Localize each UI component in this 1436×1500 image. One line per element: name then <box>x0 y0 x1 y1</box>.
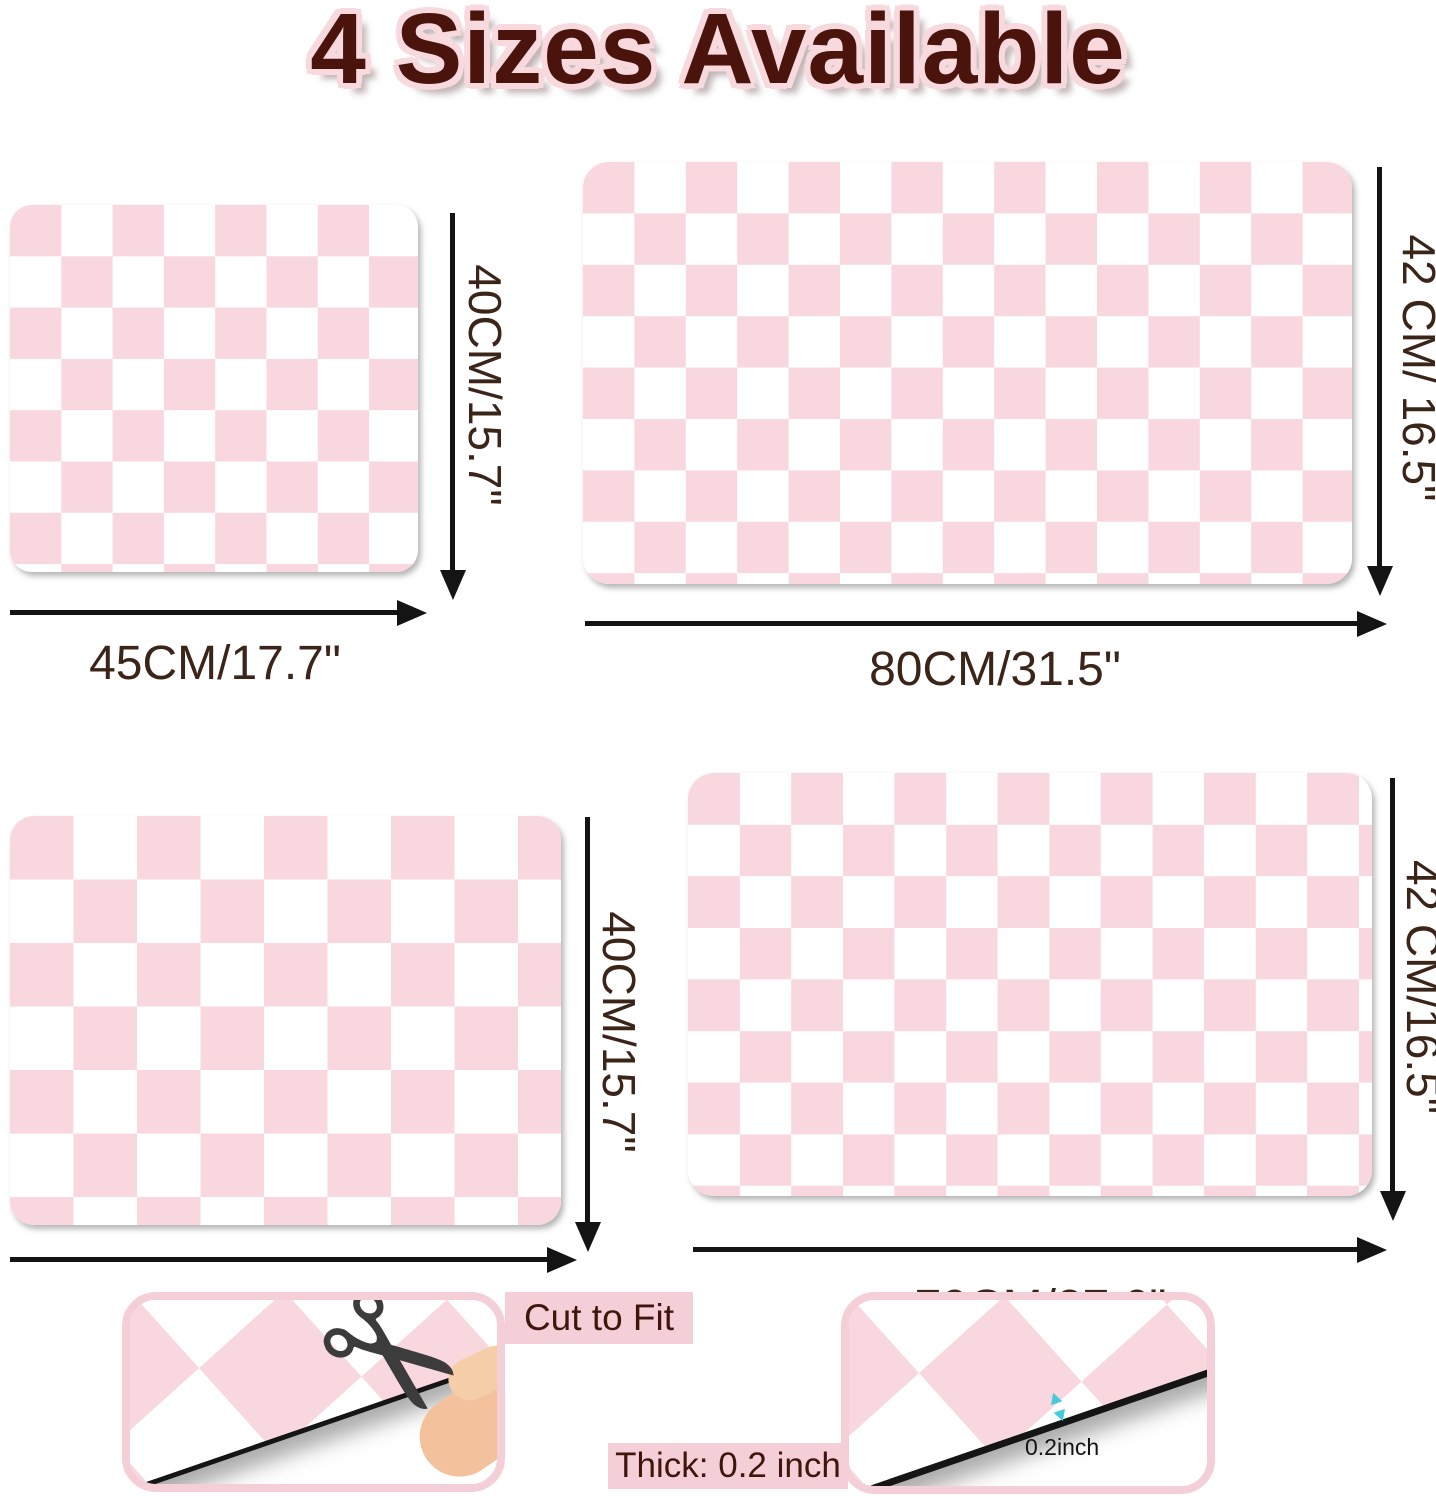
width-label-80x42: 80CM/31.5" <box>610 642 1380 697</box>
height-label-70x42: 42 CM/16.5" <box>1396 860 1436 1114</box>
width-label-45x40: 45CM/17.7" <box>10 636 420 691</box>
height-arrow-80x42 <box>1377 167 1382 567</box>
height-arrow-45x40 <box>450 213 455 571</box>
height-arrow-70x42 <box>1390 778 1395 1192</box>
cut-to-fit-photo: ✂ <box>130 1300 497 1484</box>
width-arrow-60x40 <box>10 1257 548 1262</box>
checker-mat-45x40 <box>10 205 418 572</box>
height-label-60x40: 40CM/15.7" <box>592 911 646 1152</box>
page-title: 4 Sizes Available <box>0 0 1436 107</box>
thickness-thumbnail: 0.2inch <box>841 1292 1215 1494</box>
thickness-badge: Thick: 0.2 inch <box>608 1443 848 1489</box>
height-label-45x40: 40CM/15.7" <box>458 264 512 505</box>
checker-mat-80x42 <box>583 162 1352 584</box>
product-size-infographic: 4 Sizes Available 40CM/15.7" 45CM/17.7" … <box>0 0 1436 1500</box>
cut-to-fit-thumbnail: ✂ <box>122 1292 505 1492</box>
thickness-photo: 0.2inch <box>849 1300 1207 1486</box>
cut-to-fit-badge: Cut to Fit <box>505 1292 693 1344</box>
thickness-note: 0.2inch <box>1025 1434 1099 1461</box>
checker-mat-60x40 <box>10 816 561 1225</box>
height-label-80x42: 42 CM/ 16.5" <box>1392 235 1436 502</box>
width-arrow-45x40 <box>10 610 398 615</box>
width-arrow-70x42 <box>693 1247 1358 1252</box>
checker-mat-70x42 <box>688 773 1372 1196</box>
height-arrow-60x40 <box>585 817 590 1223</box>
width-arrow-80x42 <box>585 621 1358 626</box>
